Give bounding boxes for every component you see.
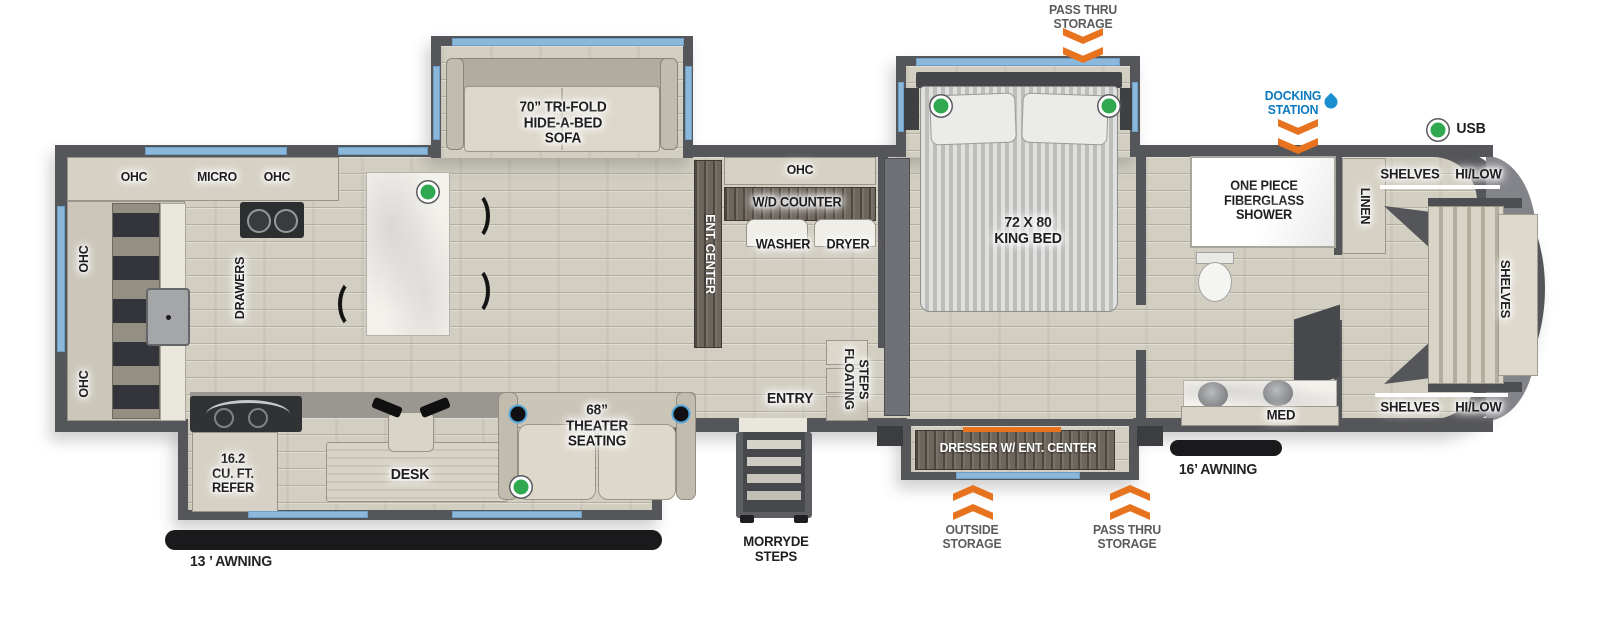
king-bed-label: 72 X 80 KING BED bbox=[994, 215, 1061, 247]
kitchen-ohc-top-left-label: OHC bbox=[121, 170, 148, 184]
pass-thru-storage-bottom-label: PASS THRU STORAGE bbox=[1093, 523, 1161, 551]
wall-top-middle bbox=[688, 145, 902, 157]
dresser-mount-left bbox=[877, 426, 903, 446]
morryde-step-tread-1 bbox=[747, 440, 801, 449]
wd-counter-label: W/D COUNTER bbox=[753, 196, 842, 211]
island-stool-right-1 bbox=[458, 191, 490, 241]
usb-indicator-bed-left bbox=[931, 96, 952, 117]
dresser-mount-right bbox=[1137, 426, 1163, 446]
laundry-ohc-label: OHC bbox=[787, 163, 814, 177]
usb-label: USB bbox=[1456, 121, 1485, 137]
cooktop-burner-right bbox=[274, 209, 298, 233]
sofa-label: 70” TRI-FOLD HIDE-A-BED SOFA bbox=[519, 101, 606, 148]
docking-station-arrow-down-icon bbox=[1278, 119, 1318, 155]
window-dresser-slide bbox=[956, 472, 1080, 479]
vanity-sink-right bbox=[1263, 380, 1293, 406]
usb-indicator-bed-right bbox=[1099, 96, 1120, 117]
awning-16-bar bbox=[1170, 440, 1282, 456]
window-sofa-slide-left bbox=[433, 66, 440, 140]
wall-bedroom-bath-upper bbox=[1136, 155, 1146, 305]
entry-door-opening bbox=[739, 418, 807, 432]
nightstand-left bbox=[904, 88, 919, 130]
morryde-step-tread-2 bbox=[747, 457, 801, 466]
desk-chair-seat bbox=[388, 412, 434, 452]
desk-label: DESK bbox=[391, 467, 429, 483]
floating-steps-label: FLOATING STEPS bbox=[842, 348, 871, 409]
vanity-base bbox=[1181, 406, 1339, 426]
window-kitchen-top bbox=[145, 147, 287, 155]
shower-label: ONE PIECE FIBERGLASS SHOWER bbox=[1224, 179, 1304, 223]
sofa-arm-left bbox=[446, 58, 464, 150]
pass-thru-bottom-arrow-up-icon bbox=[1110, 485, 1150, 521]
morryde-step-foot-right bbox=[794, 515, 808, 523]
floorplan-canvas: PASS THRU STORAGE DOCKING STATION USB OU… bbox=[0, 0, 1600, 625]
dresser-tv bbox=[963, 427, 1061, 432]
dryer-label: DRYER bbox=[826, 238, 869, 253]
range-burner-1 bbox=[214, 408, 234, 428]
awning-16-label: 16’ AWNING bbox=[1179, 462, 1257, 478]
docking-station-label: DOCKING STATION bbox=[1265, 89, 1321, 117]
island-stool-left bbox=[338, 279, 370, 329]
sofa-arm-right bbox=[660, 58, 678, 150]
wall-bedroom-bath-lower bbox=[1136, 350, 1146, 422]
closet-shelf-line-top bbox=[1380, 185, 1500, 189]
toilet-bowl bbox=[1198, 262, 1232, 302]
shelves-hi-low-top-label: SHELVES HI/LOW bbox=[1380, 166, 1501, 181]
bed-pillow-right bbox=[1021, 93, 1109, 146]
island-stool-right-2 bbox=[458, 266, 490, 316]
shelves-vertical-label: SHELVES bbox=[1498, 260, 1512, 318]
usb-indicator-island bbox=[418, 182, 439, 203]
vanity-sink-left bbox=[1198, 382, 1228, 408]
kitchen-ohc-top-right-label: OHC bbox=[264, 170, 291, 184]
outside-storage-arrow-up-icon bbox=[953, 485, 993, 521]
usb-indicator-front bbox=[1428, 120, 1449, 141]
refer-label: 16.2 CU. FT. REFER bbox=[212, 452, 254, 496]
window-rear-wall bbox=[57, 206, 65, 352]
outside-storage-label: OUTSIDE STORAGE bbox=[943, 523, 1002, 551]
morryde-steps-label: MORRYDE STEPS bbox=[743, 534, 808, 564]
window-island-top bbox=[338, 147, 428, 155]
morryde-step-foot-left bbox=[740, 515, 754, 523]
kitchen-micro-label: MICRO bbox=[197, 170, 237, 184]
window-bed-slide-right bbox=[1132, 82, 1138, 132]
morryde-step-tread-4 bbox=[747, 491, 801, 500]
kitchen-drawers-label: DRAWERS bbox=[233, 257, 247, 319]
pass-thru-top-arrow-down-icon bbox=[1063, 28, 1103, 64]
entry-label: ENTRY bbox=[767, 391, 813, 407]
closet-shelves-ridged bbox=[1428, 206, 1504, 384]
pass-thru-storage-top-label: PASS THRU STORAGE bbox=[1049, 3, 1117, 31]
window-theater-slide-1 bbox=[248, 511, 368, 518]
shelves-hi-low-bottom-label: SHELVES HI/LOW bbox=[1380, 399, 1501, 414]
usb-indicator-theater bbox=[511, 477, 532, 498]
bedroom-wardrobe bbox=[884, 158, 910, 416]
kitchen-ohc-rear-upper-label: OHC bbox=[77, 245, 91, 272]
dresser-label: DRESSER W/ ENT. CENTER bbox=[940, 441, 1097, 455]
washer-label: WASHER bbox=[756, 238, 811, 253]
linen-label: LINEN bbox=[1357, 188, 1371, 225]
awning-13-label: 13 ’ AWNING bbox=[190, 554, 272, 570]
med-label: MED bbox=[1267, 407, 1296, 422]
window-sofa-slide-right bbox=[685, 66, 692, 140]
morryde-step-tread-3 bbox=[747, 474, 801, 483]
window-theater-slide-2 bbox=[452, 511, 582, 518]
ent-center-label: ENT. CENTER bbox=[702, 214, 716, 294]
range-burner-2 bbox=[248, 408, 268, 428]
cup-holder-right bbox=[672, 405, 691, 424]
bath-corner-counter bbox=[1294, 305, 1340, 392]
kitchen-sink-drain bbox=[166, 315, 171, 320]
cup-holder-left bbox=[509, 405, 528, 424]
kitchen-ohc-rear-lower-label: OHC bbox=[77, 370, 91, 397]
window-bed-slide-left bbox=[898, 82, 904, 132]
window-sofa-slide-top bbox=[452, 38, 684, 46]
cooktop-burner-left bbox=[247, 209, 271, 233]
awning-13-bar bbox=[165, 530, 662, 550]
closet-shelf-line-bottom bbox=[1375, 393, 1508, 397]
water-drop-icon bbox=[1322, 93, 1340, 111]
theater-seating-label: 68” THEATER SEATING bbox=[566, 404, 628, 451]
